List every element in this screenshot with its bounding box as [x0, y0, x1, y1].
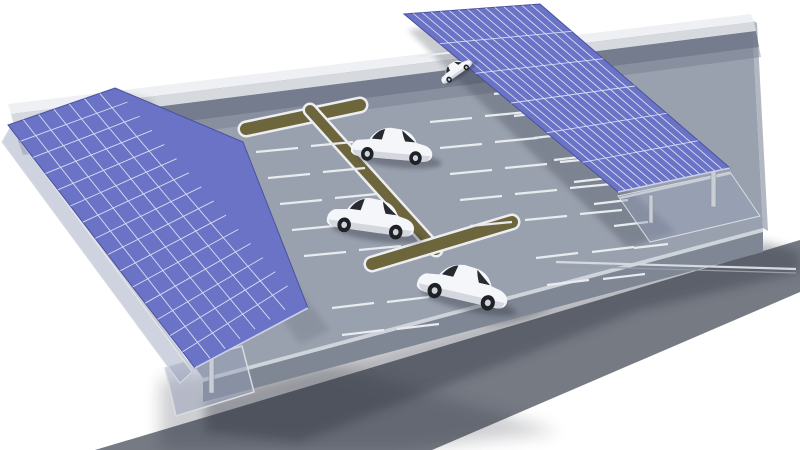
solar-carport-render — [0, 0, 800, 450]
solar-canopy-right-post — [649, 195, 653, 223]
solar-canopy-right-post — [711, 171, 716, 207]
scene-canvas — [0, 0, 800, 450]
